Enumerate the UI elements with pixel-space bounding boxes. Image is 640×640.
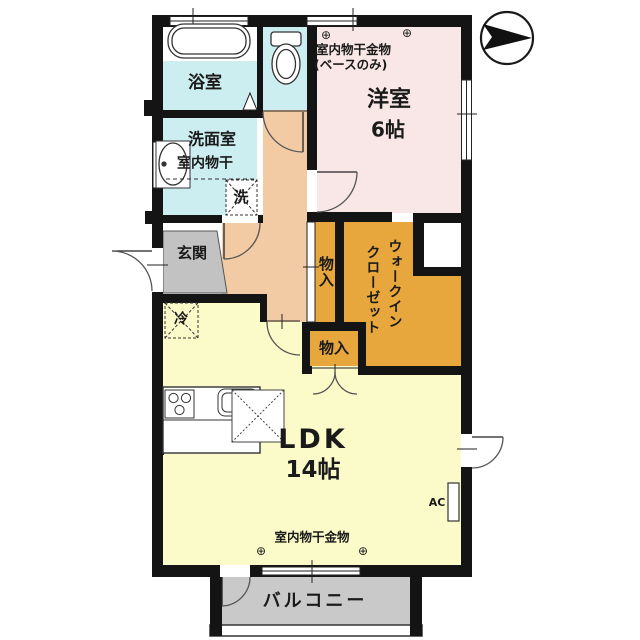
room-hallway (263, 110, 307, 322)
balcony-door-gap (220, 565, 250, 577)
washer-label: 洗 (233, 190, 248, 206)
room-label-western: 洋室 (367, 88, 411, 111)
room-label-balcony: バルコニー (263, 593, 368, 612)
floor-plan: 浴室 洗面室 室内物干 洗 玄関 洋室 6帖 室内物干金物 (ベースのみ) ⊕ … (0, 0, 640, 640)
anchor-icon: ⊕ (321, 28, 331, 42)
western-size: 6帖 (371, 120, 405, 141)
ldk-east-door (472, 437, 503, 468)
room-label-ldk: LDK (278, 426, 348, 454)
western-note-1: 室内物干金物 (316, 43, 391, 57)
room-wic-ext (413, 275, 462, 366)
anchor-icon: ⊕ (358, 544, 368, 558)
wic-label-line2: クローゼット (365, 245, 380, 335)
western-note-2: (ベースのみ) (314, 58, 387, 72)
entrance-door-gap (152, 248, 163, 292)
room-label-washroom: 洗面室 (188, 132, 236, 149)
entrance-door (112, 251, 152, 291)
closet-upper-label: 物入 (317, 256, 333, 288)
closet-lower-label: 物入 (319, 341, 349, 357)
ac-sleeve (448, 483, 459, 521)
balcony-railing (210, 625, 422, 636)
ldk-note: 室内物干金物 (274, 530, 349, 543)
bathtub-icon (168, 24, 250, 58)
balcony-wall-left (210, 577, 222, 636)
anchor-icon: ⊕ (256, 544, 266, 558)
compass-icon (481, 12, 533, 64)
ac-label: AC (429, 497, 446, 509)
room-label-bath: 浴室 (188, 75, 222, 93)
anchor-icon: ⊕ (402, 26, 412, 40)
table-mark (232, 390, 284, 442)
toilet-icon (271, 32, 301, 84)
ldk-size: 14帖 (285, 458, 340, 482)
fridge-label: 冷 (174, 313, 188, 328)
balcony-wall-right (410, 577, 422, 636)
ldk-east-door-gap (461, 434, 472, 467)
wic-label-line1: ウォークイン (387, 239, 402, 329)
room-label-entrance: 玄関 (177, 246, 207, 262)
washroom-note: 室内物干 (177, 157, 233, 172)
